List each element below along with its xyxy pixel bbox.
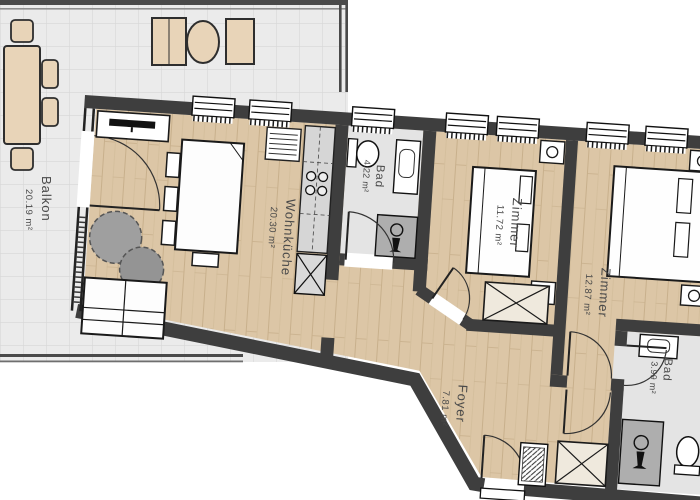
foyer-label: Foyer — [453, 384, 471, 423]
chair — [166, 153, 181, 178]
floor-plan-svg: Balkon 20.19 m² — [0, 0, 700, 500]
nightstand — [540, 140, 565, 164]
balcony-chair — [11, 20, 33, 42]
floor-plan-canvas: Balkon 20.19 m² — [0, 0, 700, 500]
bathroom2-label: Bad — [660, 358, 674, 382]
balcony-lounge-set — [152, 18, 254, 65]
sink — [393, 140, 420, 194]
window — [586, 122, 630, 150]
shaft — [294, 253, 327, 295]
wardrobe — [555, 441, 608, 486]
nightstand — [689, 150, 700, 172]
pillow — [674, 222, 690, 257]
bathroom1-label: Bad — [372, 164, 386, 188]
chair — [192, 252, 219, 267]
washing-machine — [518, 443, 548, 487]
balcony-label: Balkon — [39, 176, 54, 222]
balcony-area: 20.19 m² — [23, 189, 34, 231]
wall-living-foyer — [320, 337, 335, 366]
nightstand — [680, 285, 700, 307]
balcony-lounger — [226, 19, 254, 64]
wall-bath2-left-upper — [615, 331, 628, 347]
bed — [607, 166, 700, 283]
entrance-door-leaf — [480, 488, 525, 500]
balcony-chair — [42, 98, 58, 126]
chair — [161, 220, 176, 245]
balcony-wall-right-inner — [345, 0, 348, 92]
chair — [164, 187, 179, 212]
pillow — [677, 179, 693, 214]
window — [248, 100, 292, 128]
window — [645, 126, 689, 154]
balcony-wall-top-inner — [0, 8, 348, 10]
wall-bedroom2-bottom-left — [550, 374, 568, 387]
balcony-round-table — [187, 21, 219, 63]
balcony-chair — [42, 60, 58, 88]
window — [351, 107, 395, 135]
shower — [375, 215, 418, 259]
wardrobe — [483, 282, 549, 324]
balcony-wall-top — [0, 0, 348, 5]
balcony-slab-edge-inner — [0, 361, 243, 363]
apartment-body: Wohnküche 20.30 m² Bad 4.22 m — [59, 89, 700, 500]
window — [192, 96, 236, 124]
balcony-slab-edge — [0, 354, 243, 357]
shower — [618, 419, 663, 486]
window — [445, 113, 489, 141]
sofa — [81, 277, 167, 338]
tv-sideboard — [96, 111, 170, 142]
balcony-wall-right — [339, 0, 342, 92]
window — [496, 116, 540, 144]
balcony-chair — [11, 148, 33, 170]
